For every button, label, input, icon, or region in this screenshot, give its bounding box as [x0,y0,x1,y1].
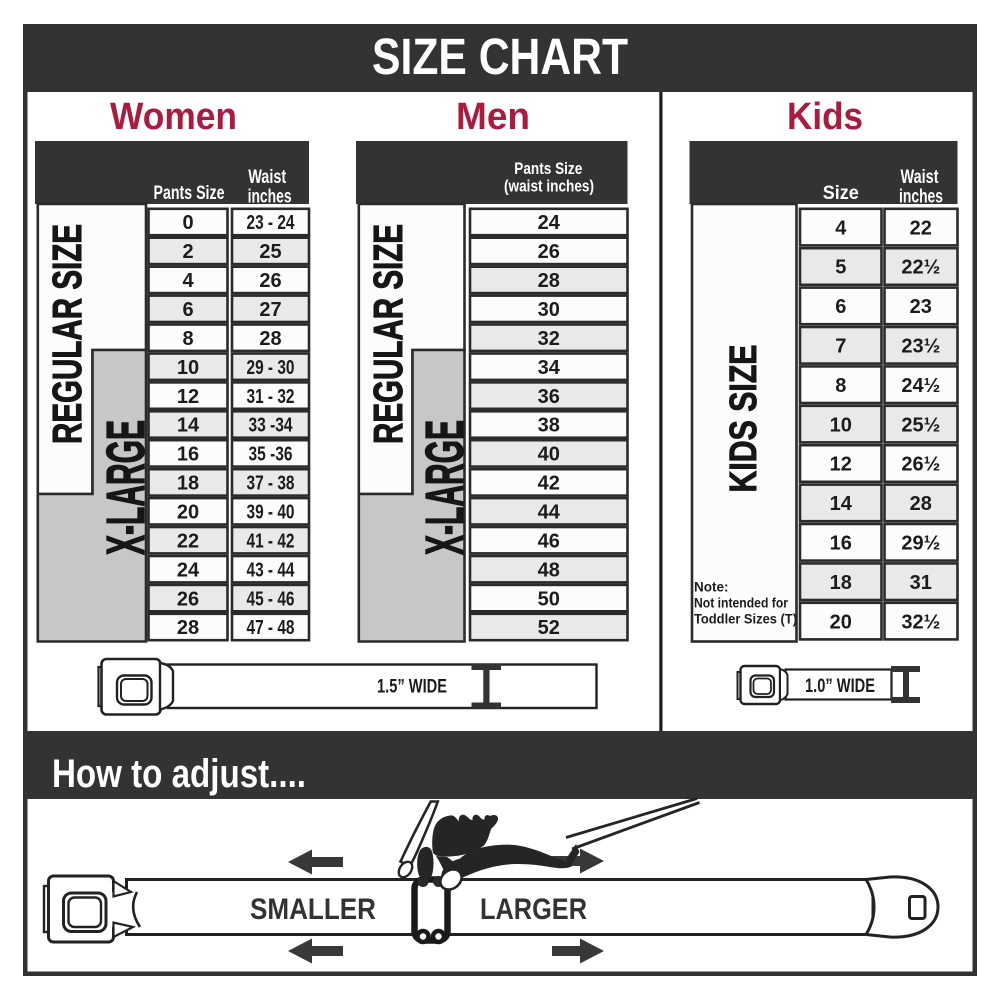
svg-text:41 - 42: 41 - 42 [247,530,295,552]
svg-text:20: 20 [177,502,199,524]
svg-text:23½: 23½ [901,336,940,358]
svg-text:SMALLER: SMALLER [250,893,376,926]
svg-text:Women: Women [110,96,237,138]
svg-text:26: 26 [177,588,199,610]
svg-text:24: 24 [538,212,561,234]
svg-text:4: 4 [835,217,847,239]
svg-text:26½: 26½ [901,454,940,476]
svg-text:1.5” WIDE: 1.5” WIDE [377,677,447,698]
svg-text:REGULAR SIZE: REGULAR SIZE [46,224,91,444]
svg-text:23 - 24: 23 - 24 [247,212,296,234]
svg-text:45 - 46: 45 - 46 [247,588,295,610]
svg-text:inches: inches [248,187,292,208]
svg-text:22: 22 [910,217,932,239]
svg-text:27: 27 [259,299,281,321]
svg-text:22: 22 [177,530,199,552]
svg-text:10: 10 [830,414,852,436]
svg-text:28: 28 [177,617,199,639]
svg-text:inches: inches [899,187,943,208]
svg-text:43 - 44: 43 - 44 [247,559,296,581]
svg-text:23: 23 [910,296,932,318]
svg-text:39 - 40: 39 - 40 [247,502,295,524]
svg-text:31 - 32: 31 - 32 [247,386,295,408]
svg-text:4: 4 [182,270,194,292]
svg-text:46: 46 [538,530,560,552]
svg-text:8: 8 [182,328,193,350]
svg-text:48: 48 [538,559,560,581]
svg-text:14: 14 [177,415,200,437]
svg-text:40: 40 [538,444,560,466]
svg-text:18: 18 [177,473,199,495]
svg-text:REGULAR SIZE: REGULAR SIZE [367,224,412,444]
svg-text:Men: Men [456,96,530,138]
svg-text:29 - 30: 29 - 30 [247,357,295,379]
svg-text:47 - 48: 47 - 48 [247,617,295,639]
svg-text:44: 44 [538,502,561,524]
svg-text:16: 16 [177,444,199,466]
svg-text:Waist: Waist [901,167,940,188]
svg-text:36: 36 [538,386,560,408]
svg-text:6: 6 [835,296,846,318]
svg-text:6: 6 [182,299,193,321]
svg-text:32½: 32½ [901,611,940,633]
svg-text:38: 38 [538,415,560,437]
svg-text:0: 0 [182,212,193,234]
svg-text:22½: 22½ [901,257,940,279]
svg-text:35 -36: 35 -36 [249,444,293,466]
svg-text:26: 26 [538,241,560,263]
svg-text:25: 25 [259,241,281,263]
svg-text:42: 42 [538,473,560,495]
svg-text:X-LARGE: X-LARGE [416,420,475,555]
svg-text:(waist inches): (waist inches) [504,178,594,196]
svg-text:LARGER: LARGER [480,893,587,926]
svg-text:Note:: Note: [694,580,729,595]
svg-text:How to adjust....: How to adjust.... [52,752,306,796]
svg-text:Not intended for: Not intended for [694,596,789,611]
svg-text:28: 28 [259,328,281,350]
svg-text:Size: Size [823,183,859,204]
svg-text:16: 16 [830,533,852,555]
svg-text:2: 2 [182,241,193,263]
svg-text:12: 12 [830,454,852,476]
svg-text:14: 14 [830,493,853,515]
svg-text:29½: 29½ [901,533,940,555]
svg-text:Toddler Sizes (T): Toddler Sizes (T) [694,612,797,627]
svg-text:24: 24 [177,559,200,581]
svg-text:20: 20 [830,611,852,633]
svg-text:KIDS SIZE: KIDS SIZE [721,345,764,493]
svg-text:Pants Size: Pants Size [154,183,225,204]
svg-text:31: 31 [910,572,932,594]
svg-text:7: 7 [835,336,846,358]
svg-text:30: 30 [538,299,560,321]
svg-text:34: 34 [538,357,561,379]
svg-text:32: 32 [538,328,560,350]
svg-text:10: 10 [177,357,199,379]
svg-text:33 -34: 33 -34 [249,415,294,437]
svg-text:25½: 25½ [901,414,940,436]
svg-text:28: 28 [910,493,932,515]
svg-text:18: 18 [830,572,852,594]
svg-text:12: 12 [177,386,199,408]
svg-text:1.0” WIDE: 1.0” WIDE [805,676,875,697]
svg-text:Kids: Kids [787,96,863,138]
svg-text:28: 28 [538,270,560,292]
svg-text:Waist: Waist [248,167,287,188]
svg-text:37 - 38: 37 - 38 [247,473,295,495]
svg-text:50: 50 [538,588,560,610]
svg-text:24½: 24½ [901,375,940,397]
svg-text:Pants Size: Pants Size [514,160,582,178]
svg-text:8: 8 [835,375,846,397]
svg-text:SIZE CHART: SIZE CHART [372,28,628,85]
svg-text:5: 5 [835,257,846,279]
svg-text:26: 26 [259,270,281,292]
svg-text:52: 52 [538,617,560,639]
